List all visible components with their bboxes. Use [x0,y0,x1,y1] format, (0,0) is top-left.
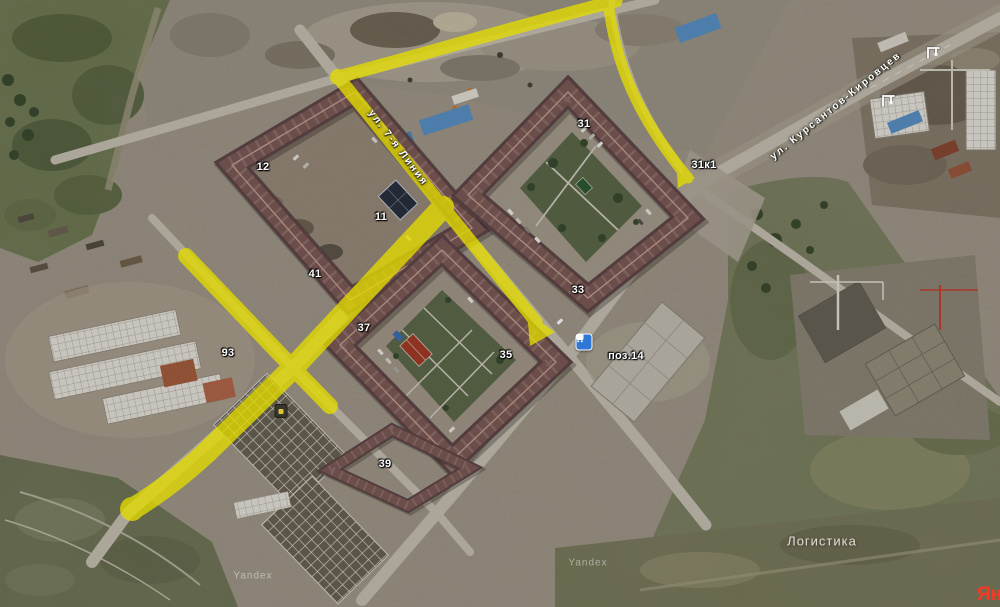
building-label-37: 37 [358,322,371,334]
building-label-33: 33 [572,284,585,296]
building-label-поз-14: поз.14 [608,350,644,362]
building-label-93: 93 [222,347,235,359]
yandex-logo[interactable]: Яндекс [977,584,1000,606]
map-viewport[interactable]: 121141933131к133373539поз.14ул. 7-я Лини… [0,0,1000,607]
map-watermark: Yandex [568,558,607,569]
yandex-logo-text: Яндекс [977,584,1000,605]
building-label-41: 41 [309,268,322,280]
building-label-11: 11 [375,211,387,223]
building-label-35: 35 [500,349,513,361]
map-labels-layer: 121141933131к133373539поз.14ул. 7-я Лини… [0,0,1000,607]
map-watermark: Yandex [233,571,272,582]
building-label-31: 31 [578,118,591,130]
street-label-ул-7-я-линия: ул. 7-я Линия [366,108,430,188]
building-label-12: 12 [257,161,270,173]
building-label-39: 39 [379,458,392,470]
poi-icon[interactable] [275,404,288,418]
building-label-31к1: 31к1 [691,159,716,171]
area-label-логистика: Логистика [787,534,857,549]
bus-stop-icon[interactable] [576,334,593,351]
